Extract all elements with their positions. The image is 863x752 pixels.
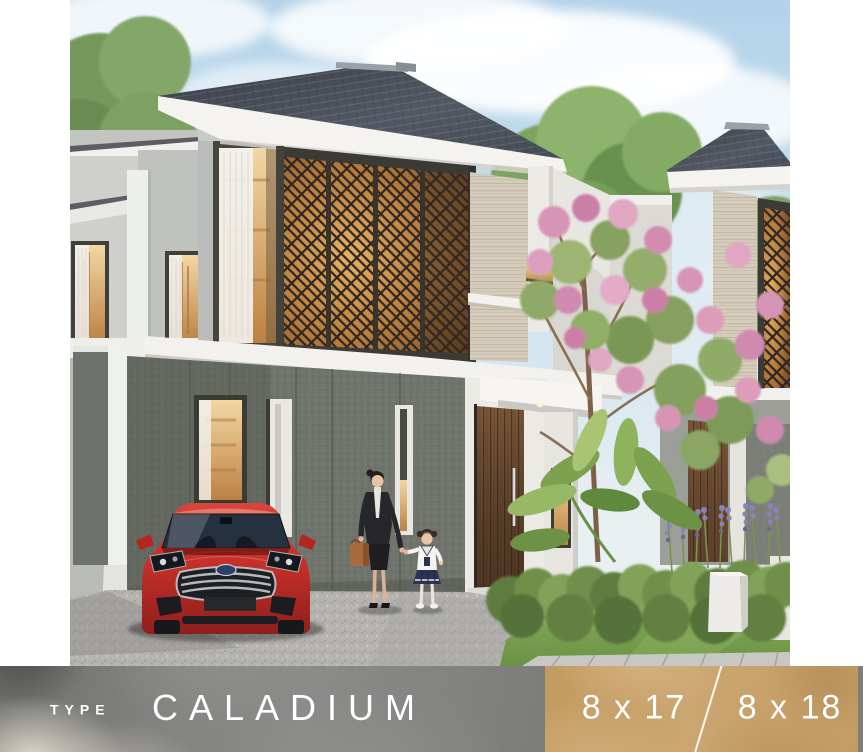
banner-right-section: 8 x 17 8 x 18 (545, 666, 863, 752)
handbag (350, 540, 369, 566)
left-upper-window-1 (71, 241, 109, 347)
slit-window-1 (194, 395, 247, 505)
slit-window-3 (395, 405, 413, 535)
white-planter (708, 572, 748, 632)
banner-left-section: TYPE CALADIUM (0, 666, 545, 752)
travertine-wall (468, 172, 532, 362)
type-banner: TYPE CALADIUM 8 x 17 8 x 18 (0, 666, 863, 752)
size-divider (693, 666, 723, 752)
car-grille (177, 565, 276, 602)
lattice-screen (276, 146, 476, 366)
type-label: TYPE (50, 702, 111, 718)
car-badge (216, 565, 236, 576)
left-upper-window-2 (165, 251, 202, 347)
house-type-name: CALADIUM (152, 687, 426, 729)
house-rendering-photo (70, 0, 790, 666)
license-plate (204, 597, 256, 611)
canopy-downlight (537, 401, 544, 408)
main-left-window (213, 141, 284, 350)
size-8x17: 8 x 17 (582, 689, 687, 728)
size-8x18: 8 x 18 (738, 689, 843, 728)
